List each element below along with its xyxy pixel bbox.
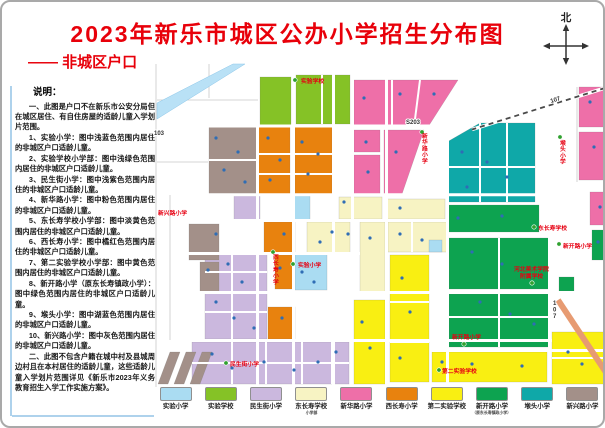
poi-dot-icon xyxy=(398,356,401,359)
poi-dot-icon xyxy=(398,92,401,95)
notes-paragraph: 一、此图是户口不在新乐市公安分局但在城区居住、有自住房屋的适龄儿童入学划片范围。 xyxy=(15,102,155,133)
zone-xinhualu xyxy=(590,192,605,225)
poi-dot-icon xyxy=(470,362,473,365)
poi-dot-icon xyxy=(280,316,283,319)
zone-dier-shiyan xyxy=(432,352,547,382)
school-map-label: 西长寿小学 xyxy=(272,253,279,286)
notes-paragraph: 7、第二实验学校小学部：图中黄色范围内居住的非城区户口适龄儿童。 xyxy=(15,258,155,279)
poi-dot-icon xyxy=(478,300,481,303)
legend-label: 实验小学 xyxy=(153,403,198,411)
school-marker-icon xyxy=(437,368,441,372)
poi-dot-icon xyxy=(346,232,349,235)
poi-dot-icon xyxy=(500,262,503,265)
zone-xinkailu xyxy=(592,230,605,260)
zone-xinkailu xyxy=(559,277,574,291)
zone-shiyan-xiaoxue xyxy=(295,254,327,290)
school-map-label: 第二实验学校 xyxy=(442,367,477,375)
legend-item-dcs: 东长寿学校小学部 xyxy=(289,387,334,416)
poster: 2023年新乐市城区公办小学招生分布图 —— 非城区户口 北 说明： 一、此图是… xyxy=(0,0,605,428)
poi-dot-icon xyxy=(300,140,303,143)
zone-xichangshou xyxy=(295,127,332,194)
zone-shiyan-xiaoxue xyxy=(293,196,310,220)
school-map-label: 实验小学 xyxy=(298,261,321,269)
legend-item-xhl: 新华路小学 xyxy=(334,387,379,411)
poi-dot-icon xyxy=(240,280,243,283)
road-label: 107 xyxy=(553,301,557,320)
school-marker-icon xyxy=(530,281,534,285)
poi-dot-icon xyxy=(232,316,235,319)
poi-dot-icon xyxy=(368,346,371,349)
poi-dot-icon xyxy=(485,160,488,163)
poi-dot-icon xyxy=(292,368,295,371)
compass-north-label: 北 xyxy=(561,11,572,24)
poi-dot-icon xyxy=(282,232,285,235)
poi-dot-icon xyxy=(440,360,443,363)
school-map-label: 附属学校 xyxy=(520,272,543,280)
legend-sublabel: （原东长寿镇政小学） xyxy=(471,411,514,416)
notes-paragraphs: 一、此图是户口不在新乐市公安分局但在城区居住、有自住房屋的适龄儿童入学划片范围。… xyxy=(15,102,155,394)
poi-dot-icon xyxy=(252,326,255,329)
school-map-label: 新兴路小学 xyxy=(158,209,187,217)
poi-dot-icon xyxy=(456,216,459,219)
legend-sublabel: 小学部 xyxy=(290,411,333,416)
poi-dot-icon xyxy=(236,150,239,153)
poi-dot-icon xyxy=(470,250,473,253)
road-label: S203 xyxy=(406,120,421,126)
legend-label: 堠头小学 xyxy=(515,403,560,411)
poi-dot-icon xyxy=(500,214,503,217)
poi-dot-icon xyxy=(596,240,599,243)
zone-xinhualu xyxy=(354,155,380,194)
poi-dot-icon xyxy=(465,185,468,188)
poi-dot-icon xyxy=(398,232,401,235)
page-subtitle: —— 非城区户口 xyxy=(28,51,137,72)
zone-houtou xyxy=(447,123,535,202)
school-marker-icon xyxy=(271,250,275,254)
legend-label: 实验学校 xyxy=(198,403,243,411)
school-map-label: 堠头小学 xyxy=(559,139,566,166)
legend-swatch xyxy=(295,387,327,401)
notes-paragraph: 二、此图不包含户籍在城中村及县城周边村且在本村居住的适龄儿童，这些适龄儿童入学划… xyxy=(15,352,155,394)
poi-dot-icon xyxy=(214,136,217,139)
poi-dot-icon xyxy=(368,236,371,239)
legend-swatch xyxy=(160,387,192,401)
notes-heading: 说明： xyxy=(15,86,155,100)
legend-swatch xyxy=(476,387,508,401)
poi-dot-icon xyxy=(398,206,401,209)
page-title: 2023年新乐市城区公办小学招生分布图 xyxy=(2,15,573,49)
river xyxy=(157,64,245,119)
school-map-label: 东长寿学校 xyxy=(538,224,567,232)
poi-dot-icon xyxy=(364,140,367,143)
school-map-label: 实验学校 xyxy=(301,77,324,85)
poi-dot-icon xyxy=(268,178,271,181)
zone-dongchangshou xyxy=(360,222,385,292)
poi-dot-icon xyxy=(592,145,595,148)
legend-swatch xyxy=(431,387,463,401)
school-map-label: 新开路小学 xyxy=(563,242,592,250)
legend-swatch xyxy=(521,387,553,401)
poi-dot-icon xyxy=(243,180,246,183)
legend-item-ht: 堠头小学 xyxy=(515,387,560,411)
zone-dongchangshou xyxy=(339,197,382,219)
school-marker-icon xyxy=(557,242,561,246)
poi-dot-icon xyxy=(330,230,333,233)
legend-swatch xyxy=(386,387,418,401)
poi-dot-icon xyxy=(312,280,315,283)
notes-paragraph: 4、新华路小学：图中粉色范围内居住的非城区户口适龄儿童。 xyxy=(15,195,155,216)
legend-item-xxl: 新兴路小学 xyxy=(560,387,605,411)
zone-xinkailu xyxy=(449,205,539,232)
poi-dot-icon xyxy=(222,168,225,171)
zone-xichangshou xyxy=(264,222,295,254)
notes-frame-line-horizontal xyxy=(12,415,154,417)
poi-dot-icon xyxy=(214,300,217,303)
legend-label: 新兴路小学 xyxy=(560,403,605,411)
school-map-label: 新开路小学 xyxy=(452,333,481,341)
poi-dot-icon xyxy=(226,262,229,265)
zone-dier-shiyan xyxy=(390,255,429,382)
school-marker-icon xyxy=(293,78,297,82)
notes-paragraph: 8、新开路小学（原东长寿镇政小学）：图中绿色范围内居住的非城区户口适龄儿童。 xyxy=(15,279,155,310)
poi-dot-icon xyxy=(206,268,209,271)
poi-dot-icon xyxy=(300,270,303,273)
legend-swatch xyxy=(340,387,372,401)
compass: 北 xyxy=(539,8,593,66)
compass-cross-icon xyxy=(543,24,589,65)
poi-dot-icon xyxy=(508,312,511,315)
city-map: 107S203107103 实验学校新华路小学西长寿小学实验小学民生街小学新兴路… xyxy=(152,62,605,388)
poi-dot-icon xyxy=(520,364,523,367)
poi-dot-icon xyxy=(334,350,337,353)
legend: 实验小学实验学校民生街小学东长寿学校小学部新华路小学西长寿小学第二实验学校新开路… xyxy=(153,387,605,416)
notes-panel: 说明： 一、此图是户口不在新乐市公安分局但在城区居住、有自住房屋的适龄儿童入学划… xyxy=(15,86,155,393)
legend-item-desy: 第二实验学校 xyxy=(424,387,469,411)
legend-item-xkl: 新开路小学（原东长寿镇政小学） xyxy=(469,387,514,416)
school-map-label: 河北美术学院 xyxy=(514,265,549,273)
poi-dot-icon xyxy=(394,150,397,153)
legend-swatch xyxy=(205,387,237,401)
notes-paragraph: 5、东长寿学校小学部：图中淡黄色范围内居住的非城区户口适龄儿童。 xyxy=(15,216,155,237)
legend-item-msj: 民生街小学 xyxy=(243,387,288,411)
school-map-label: 新华路小学 xyxy=(421,132,428,165)
legend-label: 民生街小学 xyxy=(243,403,288,411)
notes-paragraph: 10、新兴路小学：图中灰色范围内居住的非城区户口适龄儿童。 xyxy=(15,331,155,352)
poi-dot-icon xyxy=(210,352,213,355)
school-marker-icon xyxy=(532,225,536,229)
school-marker-icon xyxy=(558,135,562,139)
poi-dot-icon xyxy=(214,232,217,235)
poi-dot-icon xyxy=(420,238,423,241)
poi-dot-icon xyxy=(400,276,403,279)
poi-dot-icon xyxy=(580,362,583,365)
notes-paragraph: 9、堠头小学：图中湖蓝色范围内居住的非城区户口适龄儿童。 xyxy=(15,310,155,331)
poi-dot-icon xyxy=(262,360,265,363)
poi-dot-icon xyxy=(505,175,508,178)
school-marker-icon xyxy=(462,342,466,346)
poi-dot-icon xyxy=(316,152,319,155)
poi-dot-icon xyxy=(362,96,365,99)
zone-dongchangshou xyxy=(307,222,350,254)
notes-paragraph: 3、民生街小学：图中浅紫色范围内居住的非城区户口适龄儿童。 xyxy=(15,175,155,196)
poi-dot-icon xyxy=(432,92,435,95)
notes-paragraph: 1、实验小学：图中浅蓝色范围内居住的非城区户口适龄儿童。 xyxy=(15,133,155,154)
road-label: 103 xyxy=(154,131,165,137)
legend-swatch xyxy=(566,387,598,401)
legend-label: 新华路小学 xyxy=(334,403,379,411)
legend-item-syxx: 实验学校 xyxy=(198,387,243,411)
zone-dongchangshou xyxy=(386,199,445,219)
school-marker-icon xyxy=(224,361,228,365)
legend-swatch xyxy=(250,387,282,401)
poi-dot-icon xyxy=(366,170,369,173)
poi-dot-icon xyxy=(318,240,321,243)
notes-paragraph: 6、西长寿小学：图中橘红色范围内居住的非城区户口适龄儿童。 xyxy=(15,237,155,258)
legend-label: 第二实验学校 xyxy=(424,403,469,411)
zone-shiyan-xuexiao xyxy=(260,77,291,125)
poi-dot-icon xyxy=(588,100,591,103)
poi-dot-icon xyxy=(306,172,309,175)
poi-dot-icon xyxy=(566,350,569,353)
poi-dot-icon xyxy=(408,310,411,313)
poi-dot-icon xyxy=(316,360,319,363)
legend-item-xcs: 西长寿小学 xyxy=(379,387,424,411)
zone-xinxinglu xyxy=(200,262,219,292)
poi-dot-icon xyxy=(278,158,281,161)
notes-frame-line-vertical xyxy=(10,86,12,416)
zone-xichangshou xyxy=(268,307,295,339)
poi-dot-icon xyxy=(460,150,463,153)
poi-dot-icon xyxy=(360,320,363,323)
poi-dot-icon xyxy=(266,136,269,139)
legend-label: 西长寿小学 xyxy=(379,403,424,411)
poi-dot-icon xyxy=(342,200,345,203)
legend-item-sy: 实验小学 xyxy=(153,387,198,411)
poi-dot-icon xyxy=(532,322,535,325)
school-map-label: 民生街小学 xyxy=(230,360,259,368)
zone-xinhualu xyxy=(579,132,605,180)
notes-paragraph: 2、实验学校小学部：图中浅绿色范围内居住的非城区户口适龄儿童。 xyxy=(15,154,155,175)
zone-xinhualu xyxy=(384,130,424,194)
poi-dot-icon xyxy=(278,266,281,269)
zone-xichangshou xyxy=(258,127,290,194)
poi-dot-icon xyxy=(598,205,601,208)
school-marker-icon xyxy=(291,262,295,266)
zone-shiyan-xiaoxue xyxy=(429,240,442,252)
